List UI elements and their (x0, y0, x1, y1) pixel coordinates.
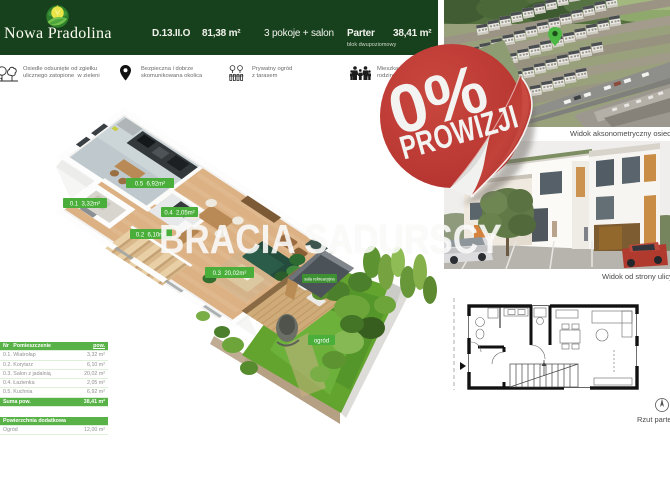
svg-text:0.3 20,02m²: 0.3 20,02m² (213, 271, 247, 277)
svg-text:ogród: ogród (314, 339, 329, 345)
svg-text:0.5 6,92m²: 0.5 6,92m² (135, 182, 165, 188)
svg-text:sala rekreacyjna: sala rekreacyjna (304, 277, 335, 282)
svg-text:0.1 3,32m²: 0.1 3,32m² (70, 202, 100, 208)
